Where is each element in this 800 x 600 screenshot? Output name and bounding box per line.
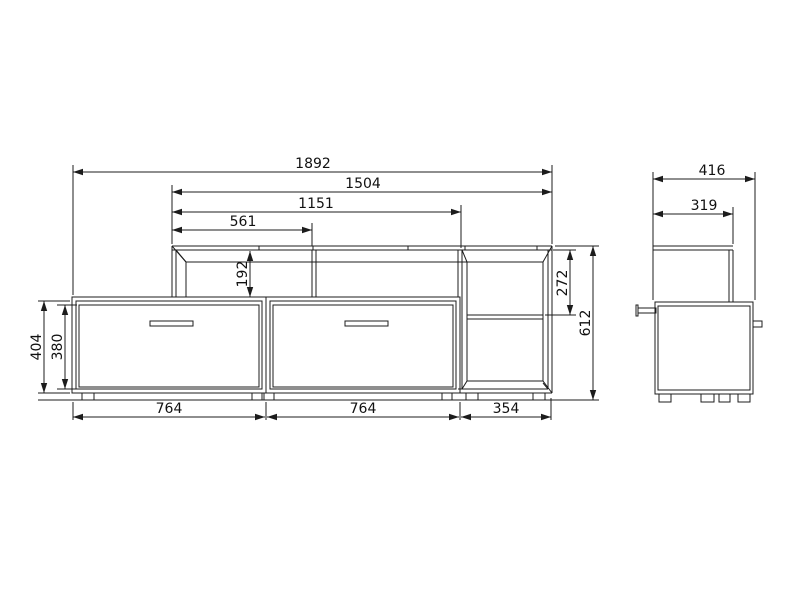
drawing-canvas: 1892 1504 1151 561 192: [0, 0, 800, 600]
arrowhead: [461, 414, 471, 420]
technical-drawing: 1892 1504 1151 561 192: [0, 0, 800, 600]
dim-divider-right: 1151: [172, 196, 461, 248]
arrowhead: [247, 251, 253, 261]
dim-drawer-left-width: 764: [73, 401, 266, 420]
dim-divider-left: 561: [172, 214, 312, 246]
foot: [738, 394, 750, 402]
dim-overall-depth: 416: [653, 163, 755, 300]
dim-label-overall-depth: 416: [699, 163, 726, 179]
arrowhead: [62, 305, 68, 315]
arrowhead: [247, 287, 253, 297]
dim-label-shelf-depth: 319: [691, 198, 718, 214]
arrowhead: [73, 414, 83, 420]
arrowhead: [723, 211, 733, 217]
arrowhead: [302, 227, 312, 233]
dim-label-drawer-right-width: 764: [350, 401, 377, 417]
arrowhead: [542, 189, 552, 195]
dim-label-base-height: 404: [29, 334, 45, 361]
arrowhead: [653, 176, 663, 182]
dim-label-overall-width: 1892: [295, 156, 331, 172]
side-knob: [753, 321, 762, 327]
drawer-unit-right: [266, 297, 460, 393]
dim-shelf-width: 1504: [172, 176, 552, 244]
front-view: 1892 1504 1151 561 192: [29, 156, 599, 420]
arrowhead: [451, 209, 461, 215]
dim-label-niche-height: 272: [555, 270, 571, 297]
foot: [442, 393, 452, 400]
arrowhead: [590, 390, 596, 400]
dim-open-section-width: 354: [461, 398, 551, 420]
drawer-front: [273, 305, 453, 387]
foot: [264, 393, 274, 400]
arrowhead: [567, 250, 573, 260]
feet-front: [82, 393, 545, 400]
foot: [82, 393, 94, 400]
dim-shelf-depth: 319: [653, 198, 733, 244]
open-shelf-section: [458, 246, 552, 393]
foot: [701, 394, 714, 402]
dim-label-shelf-width: 1504: [345, 176, 381, 192]
drawer-unit-left: [72, 297, 266, 393]
arrowhead: [62, 379, 68, 389]
dim-shelf-opening-height: 192: [235, 251, 253, 297]
drawer-handle: [345, 321, 388, 326]
arrowhead: [542, 169, 552, 175]
arrowhead: [541, 414, 551, 420]
dim-label-divider-left: 561: [230, 214, 257, 230]
foot: [252, 393, 262, 400]
dim-label-drawer-left-width: 764: [156, 401, 183, 417]
dim-niche-height: 272: [545, 250, 576, 315]
side-back-panel: [729, 250, 733, 302]
arrowhead: [41, 301, 47, 311]
arrowhead: [567, 305, 573, 315]
arrowhead: [590, 246, 596, 256]
side-cabinet: [636, 302, 762, 394]
arrowhead: [745, 176, 755, 182]
dim-drawer-right-width: 764: [267, 401, 460, 420]
arrowhead: [41, 383, 47, 393]
dim-drawer-front-height: 380: [50, 305, 77, 389]
foot: [659, 394, 671, 402]
arrowhead: [172, 227, 182, 233]
dim-label-overall-height: 612: [578, 310, 594, 337]
upper-shelf: [172, 246, 552, 297]
arrowhead: [449, 414, 459, 420]
arrowhead: [267, 414, 277, 420]
arrowhead: [172, 189, 182, 195]
side-top-shelf: [653, 246, 733, 250]
dim-label-shelf-opening-height: 192: [235, 261, 251, 288]
arrowhead: [653, 211, 663, 217]
dim-label-divider-right: 1151: [298, 196, 334, 212]
dim-label-drawer-front-height: 380: [50, 334, 66, 361]
drawer-front: [79, 305, 259, 387]
foot: [533, 393, 545, 400]
side-handle: [638, 308, 656, 313]
drawer-handle: [150, 321, 193, 326]
foot: [719, 394, 730, 402]
foot: [466, 393, 478, 400]
dim-overall-height: 612: [555, 246, 599, 400]
arrowhead: [172, 209, 182, 215]
arrowhead: [255, 414, 265, 420]
dim-label-open-section-width: 354: [493, 401, 520, 417]
feet-side: [659, 394, 750, 402]
side-view: 416 319: [636, 163, 762, 402]
arrowhead: [73, 169, 83, 175]
